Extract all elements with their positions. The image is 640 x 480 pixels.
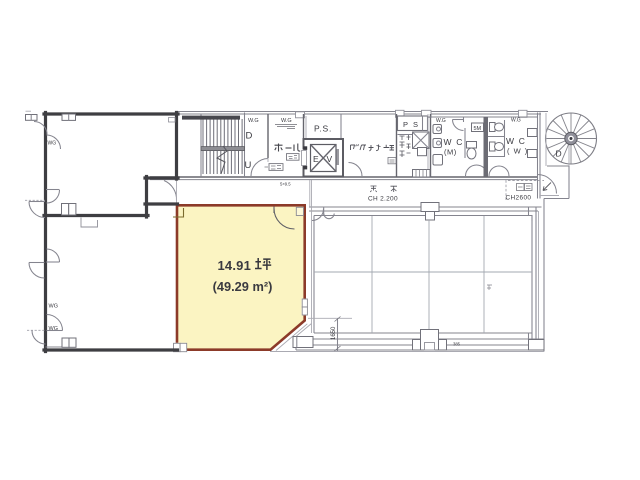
svg-text:W.G: W.G: [248, 118, 259, 124]
svg-text:5M: 5M: [474, 126, 482, 132]
svg-text:V: V: [327, 154, 333, 164]
svg-text:14.91: 14.91: [218, 258, 252, 273]
svg-text:CH2600: CH2600: [506, 195, 532, 202]
svg-text:1650: 1650: [331, 326, 337, 340]
svg-text:D: D: [246, 131, 253, 142]
svg-text:385: 385: [453, 342, 461, 347]
svg-text:P.S.: P.S.: [314, 124, 332, 134]
svg-text:(49.29 m²): (49.29 m²): [213, 279, 273, 294]
svg-text:WG: WG: [49, 304, 58, 310]
svg-text:W.G: W.G: [281, 118, 292, 124]
svg-text:5×9.5: 5×9.5: [280, 182, 291, 187]
svg-text:W.G: W.G: [436, 118, 446, 124]
svg-text:(M): (M): [444, 148, 457, 157]
svg-text:P S: P S: [403, 120, 419, 129]
svg-text:W.G: W.G: [511, 118, 521, 124]
svg-text:W C: W C: [444, 137, 464, 147]
svg-text:( W ): ( W ): [507, 147, 528, 156]
svg-text:WG: WG: [48, 141, 57, 147]
svg-text:E: E: [313, 154, 319, 164]
svg-text:D: D: [556, 149, 562, 159]
svg-text:U: U: [245, 160, 252, 171]
svg-text:W C: W C: [506, 136, 526, 146]
svg-text:WG: WG: [49, 326, 58, 332]
svg-text:CH 2.200: CH 2.200: [368, 196, 398, 203]
